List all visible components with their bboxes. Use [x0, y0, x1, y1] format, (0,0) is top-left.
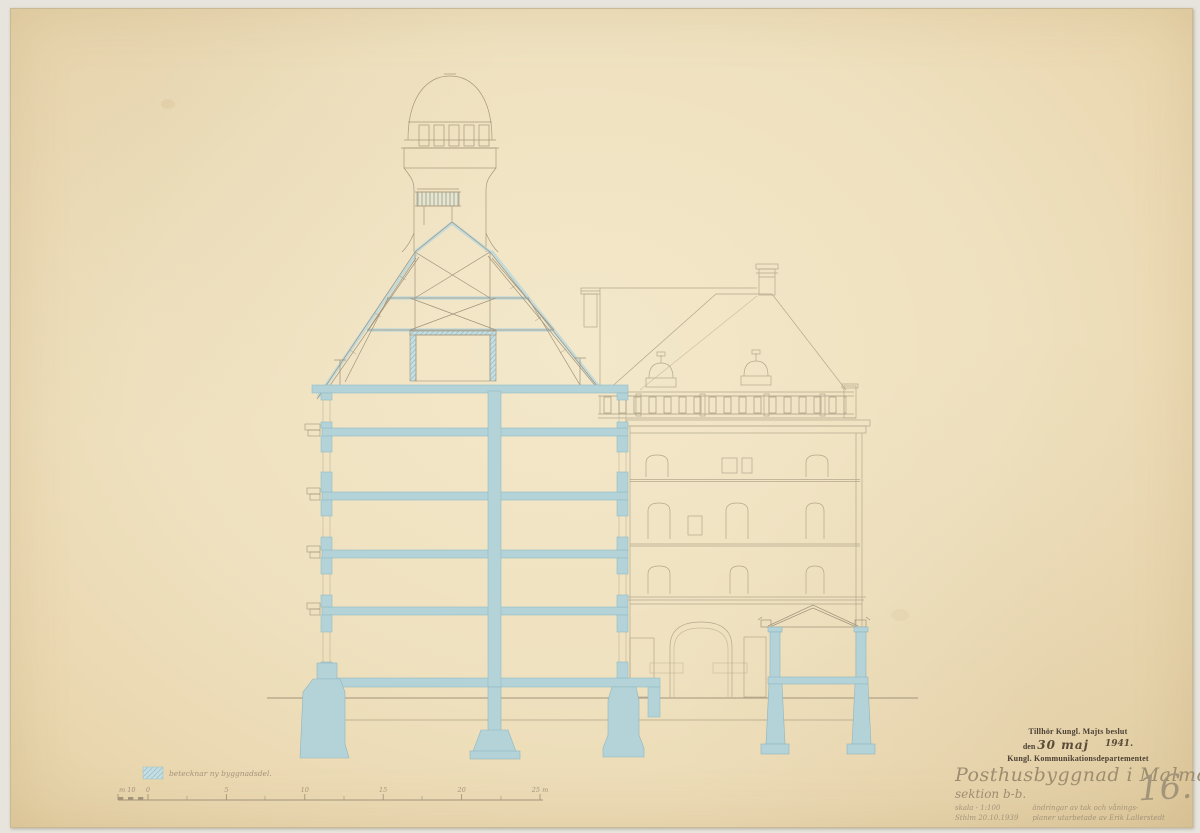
left-footing — [300, 679, 349, 758]
roof-truss — [312, 222, 628, 399]
left-footing-cap — [317, 663, 337, 679]
scale-tick-labels: 0510152025 m — [148, 786, 568, 796]
truss-blue-members — [318, 223, 602, 397]
hip-roof — [608, 294, 846, 390]
legend-label: betecknar ny byggnadsdel. — [169, 769, 272, 778]
truss-x-brace — [415, 252, 490, 298]
sheet-number: 16. — [1137, 767, 1193, 810]
annex-pier-right — [852, 684, 871, 744]
right-wall — [617, 393, 628, 678]
tower-cornice — [401, 148, 499, 168]
annex-section — [758, 605, 875, 754]
central-column — [488, 391, 501, 687]
facade-windows-row2 — [648, 503, 824, 539]
left-wall — [321, 393, 332, 678]
stamp-line3: Kungl. Kommunikationsdepartementet — [988, 755, 1168, 764]
stamp-date-line: den 30 maj 1941. — [988, 739, 1168, 753]
scale-subdivided-segment — [118, 794, 143, 800]
tower-inner-column — [415, 189, 461, 225]
annex-floor-slab — [768, 677, 868, 684]
roof-dormer-vent — [741, 350, 771, 385]
tower-drum-windows — [419, 125, 489, 146]
scale-note: skala - 1:100 — [955, 803, 1018, 813]
chimney-right — [756, 264, 778, 295]
revision-note-line2: planer utarbetade av Erik Lallerstedt — [1032, 813, 1165, 823]
central-pier — [488, 687, 501, 731]
facade-windows-row1 — [646, 455, 828, 477]
legend-swatch — [143, 767, 163, 779]
mid-cornice — [626, 597, 866, 604]
scale-prefix-label: m 10 — [119, 786, 136, 794]
roof-balustrade — [598, 384, 858, 418]
tower-dome — [408, 76, 492, 140]
truss-linework — [317, 222, 602, 399]
stamp-den: den — [1023, 742, 1035, 751]
chimney-left — [581, 288, 600, 327]
tower-shaft — [402, 168, 498, 252]
window-jambs — [323, 400, 626, 662]
ground-lines — [267, 698, 918, 720]
attic-floor-slab — [312, 385, 628, 393]
scale-tick-label: 5 — [224, 786, 228, 794]
string-course — [630, 544, 860, 546]
place-date: Sthlm 20.10.1939 — [955, 813, 1018, 823]
scale-tick-label: 10 — [301, 786, 309, 794]
annex-footing — [847, 744, 875, 754]
scale-tick-label: 25 m — [532, 786, 549, 794]
central-footing-base — [470, 751, 520, 759]
truss-x-brace — [410, 298, 496, 330]
approval-stamp: Tillhör Kungl. Majts beslut den 30 maj 1… — [988, 728, 1168, 763]
scanned-drawing-page: { "document": { "kind": "archival archit… — [0, 0, 1200, 833]
stamp-line1: Tillhör Kungl. Majts beslut — [988, 728, 1168, 737]
stamp-date-handwritten: 30 maj — [1037, 738, 1089, 752]
right-footing — [603, 687, 644, 757]
facade-moldings-left — [305, 424, 320, 615]
annex-pediment — [758, 605, 870, 627]
scale-tick-label: 15 — [379, 786, 387, 794]
facade-cornice — [626, 420, 870, 433]
architectural-section-drawing — [0, 0, 1200, 833]
annex-pier-left — [766, 684, 785, 744]
scale-tick-label: 0 — [146, 786, 150, 794]
foundations — [300, 663, 644, 759]
scale-tick-label: 20 — [457, 786, 465, 794]
scale-and-date: skala - 1:100 Sthlm 20.10.1939 — [955, 803, 1018, 823]
attic-room — [410, 331, 496, 381]
string-course — [630, 480, 860, 482]
annex-structure — [761, 627, 875, 754]
main-section-block — [305, 391, 660, 717]
facade-wall — [626, 433, 866, 697]
annex-footing — [761, 744, 789, 754]
facade-windows-row3 — [648, 566, 824, 594]
stamp-year-handwritten: 1941. — [1105, 739, 1133, 749]
